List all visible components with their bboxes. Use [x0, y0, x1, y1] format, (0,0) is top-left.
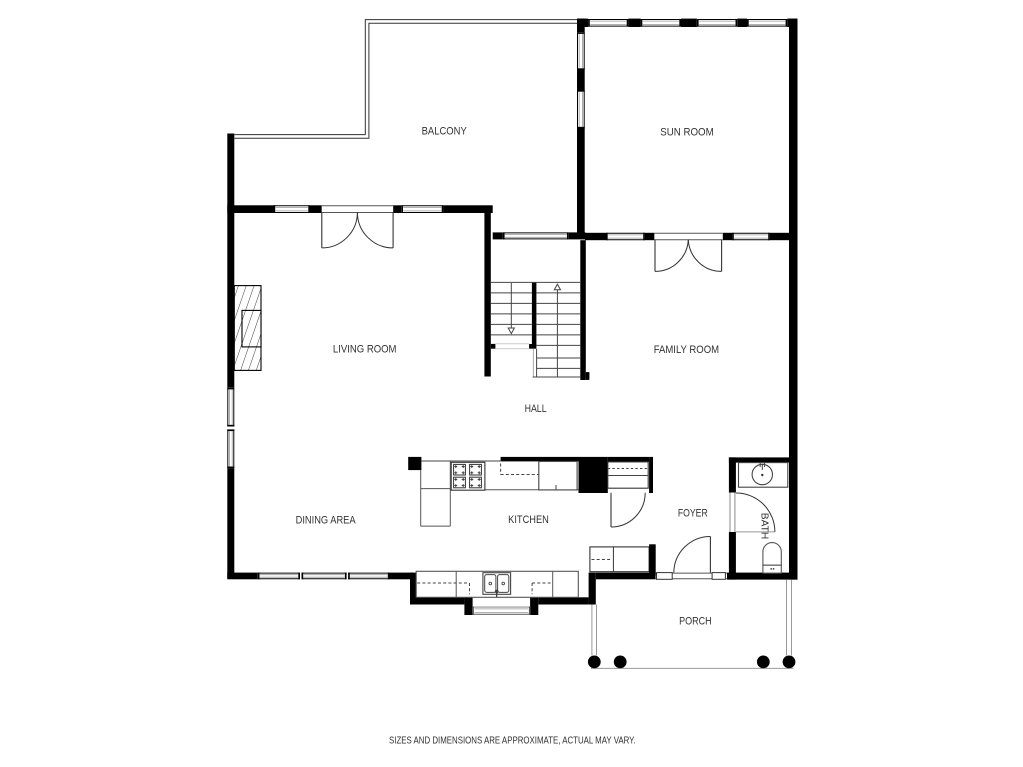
- svg-text:KITCHEN: KITCHEN: [508, 514, 549, 526]
- svg-text:DINING AREA: DINING AREA: [296, 514, 357, 526]
- svg-text:SIZES AND DIMENSIONS ARE APPRO: SIZES AND DIMENSIONS ARE APPROXIMATE, AC…: [389, 736, 636, 747]
- svg-text:SUN ROOM: SUN ROOM: [660, 126, 713, 138]
- svg-text:BATH: BATH: [759, 513, 771, 539]
- svg-text:HALL: HALL: [525, 403, 547, 415]
- svg-text:FAMILY ROOM: FAMILY ROOM: [654, 344, 719, 356]
- svg-text:LIVING ROOM: LIVING ROOM: [333, 344, 397, 356]
- svg-text:BALCONY: BALCONY: [422, 126, 468, 138]
- svg-text:FOYER: FOYER: [678, 508, 708, 520]
- svg-text:PORCH: PORCH: [679, 615, 712, 627]
